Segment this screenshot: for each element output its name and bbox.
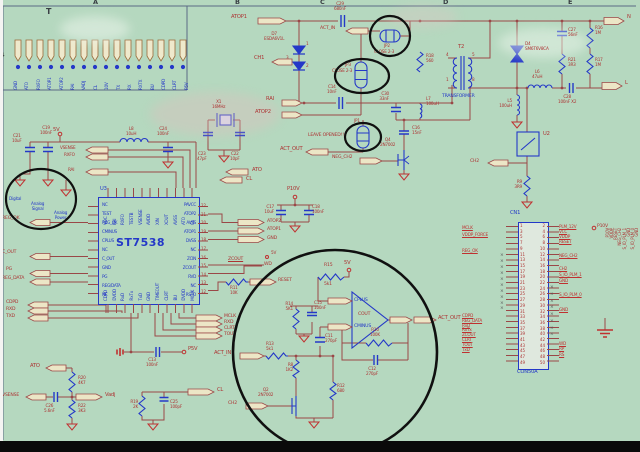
- schematic-page: A B C D E 4 T GNDATORXFOATOP1ATOP2RAIVAD…: [0, 0, 640, 452]
- annotation-jp2-circle: [370, 16, 410, 56]
- annotation-grounds-circle: [6, 169, 76, 229]
- annotation-jp3-circle: [335, 59, 389, 93]
- bottom-bar: [0, 441, 640, 452]
- left-margin: [0, 0, 3, 441]
- annotation-jp1-circle: [345, 123, 381, 151]
- annotation-circles: [0, 0, 640, 452]
- annotation-filter-circle: [233, 250, 437, 452]
